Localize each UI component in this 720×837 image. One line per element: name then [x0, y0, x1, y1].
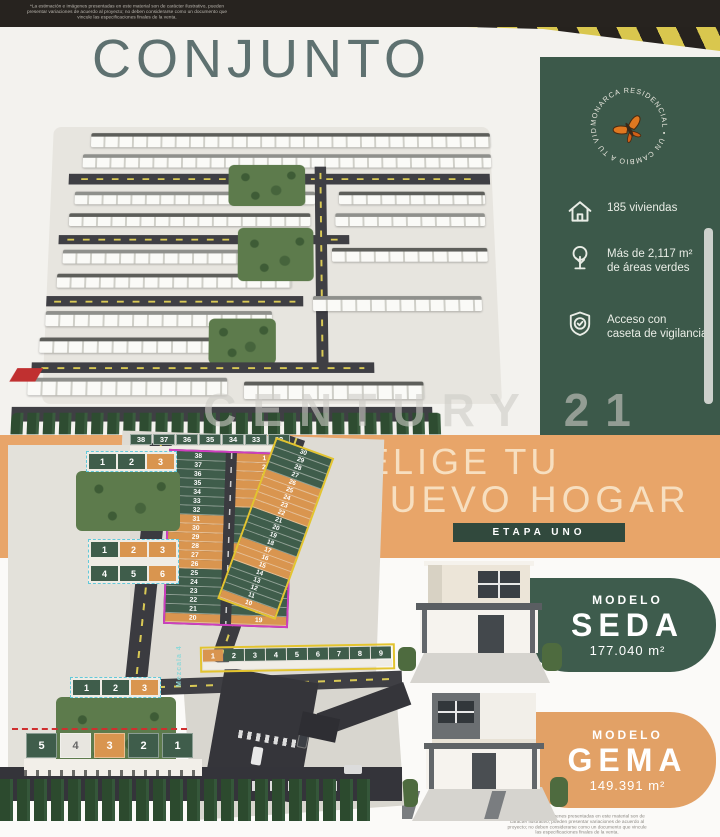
- lot: 3: [149, 542, 176, 557]
- butterfly-icon: [612, 115, 648, 147]
- model-name: SEDA: [571, 607, 684, 643]
- block-c-lots: 123: [70, 677, 161, 698]
- lot: 3: [131, 680, 158, 695]
- shield-icon: [565, 309, 595, 339]
- lot: 1: [73, 680, 100, 695]
- stat-label: Más de 2,117 m² de áreas verdes: [607, 247, 692, 275]
- stat-row: Acceso con caseta de vigilancia: [540, 309, 707, 341]
- lot: 4: [266, 648, 286, 660]
- housing-row: [335, 213, 485, 226]
- lot: 3: [245, 649, 265, 661]
- model-name: GEMA: [568, 742, 688, 778]
- lot: 6: [149, 566, 176, 581]
- lot: 1: [203, 649, 223, 661]
- tree-icon: [565, 243, 595, 273]
- lot: 4: [60, 733, 91, 758]
- lot: 1: [91, 542, 118, 557]
- stat-row: Más de 2,117 m² de áreas verdes: [540, 243, 692, 275]
- housing-row: [313, 296, 482, 311]
- stat-label: Acceso con caseta de vigilancia: [607, 313, 707, 341]
- front-row-lots: 54321: [26, 733, 196, 758]
- lot: 2: [128, 733, 159, 758]
- park: [208, 319, 276, 365]
- lot: 7: [329, 647, 349, 659]
- lot: 19: [231, 615, 286, 626]
- housing-row: [339, 192, 485, 205]
- top-bar: *La estimación e imágenes presentadas en…: [0, 0, 720, 27]
- etapa-uno-banner: ETAPA UNO: [453, 523, 625, 542]
- model-label: MODELO: [592, 728, 663, 742]
- lot: 2: [102, 680, 129, 695]
- lot: 3: [147, 454, 174, 469]
- housing-row: [69, 213, 311, 226]
- conjunto-section: CONJUNTO: [0, 27, 720, 435]
- housing-row: [91, 133, 490, 147]
- lot: 1: [89, 454, 116, 469]
- model-label: MODELO: [592, 593, 663, 607]
- monarca-badge: MONARCA RESIDENCIAL • UN CAMBIO A TU VID…: [584, 81, 674, 171]
- park: [76, 471, 180, 531]
- road: [46, 296, 303, 306]
- block-a-lots: 123: [86, 451, 177, 472]
- gema-house-render: [402, 687, 568, 821]
- model-area: 149.391 m²: [590, 778, 666, 793]
- lot: 9: [371, 646, 391, 658]
- century21-watermark: CENTURY 21: [130, 383, 720, 437]
- housing-row: [332, 248, 488, 262]
- lot: 2: [224, 649, 244, 661]
- panel-side-strip: [704, 228, 713, 404]
- stat-row: 185 viviendas: [540, 197, 677, 227]
- car: [344, 765, 362, 774]
- lot: 1: [162, 733, 193, 758]
- lot: 8: [350, 647, 370, 659]
- park: [238, 228, 314, 281]
- lot: 5: [26, 733, 57, 758]
- park: [228, 165, 305, 206]
- flyer-page: *La estimación e imágenes presentadas en…: [0, 0, 720, 837]
- lot: 3: [94, 733, 125, 758]
- lot: 2: [118, 454, 145, 469]
- lot: 5: [120, 566, 147, 581]
- lot: 5: [287, 648, 307, 660]
- lot: 6: [308, 647, 328, 659]
- road: [31, 362, 374, 373]
- tree-line: [0, 779, 372, 821]
- model-area: 177.040 m²: [590, 643, 666, 658]
- etapa-section: ELIGE TU NUEVO HOGAR ETAPA UNO 383736353…: [0, 435, 720, 837]
- top-disclaimer: *La estimación e imágenes presentadas en…: [25, 4, 229, 20]
- building-strip: [24, 759, 202, 776]
- seda-house-render: [398, 557, 562, 683]
- house-icon: [565, 197, 595, 227]
- site-plan: 38373635343332 3837363534333231302928272…: [0, 435, 412, 837]
- stat-label: 185 viviendas: [607, 201, 677, 215]
- lot: 20: [165, 613, 220, 624]
- info-panel: MONARCA RESIDENCIAL • UN CAMBIO A TU VID…: [540, 57, 720, 435]
- lot: 2: [120, 542, 147, 557]
- lot: 4: [91, 566, 118, 581]
- block-b-lots: 123456: [88, 539, 179, 584]
- conjunto-title: CONJUNTO: [92, 29, 431, 89]
- lot-row-bottom: 123456789: [200, 643, 395, 672]
- street-label-mezcala-4: Mezcala 4: [176, 623, 183, 687]
- phase-line-red: [12, 728, 187, 730]
